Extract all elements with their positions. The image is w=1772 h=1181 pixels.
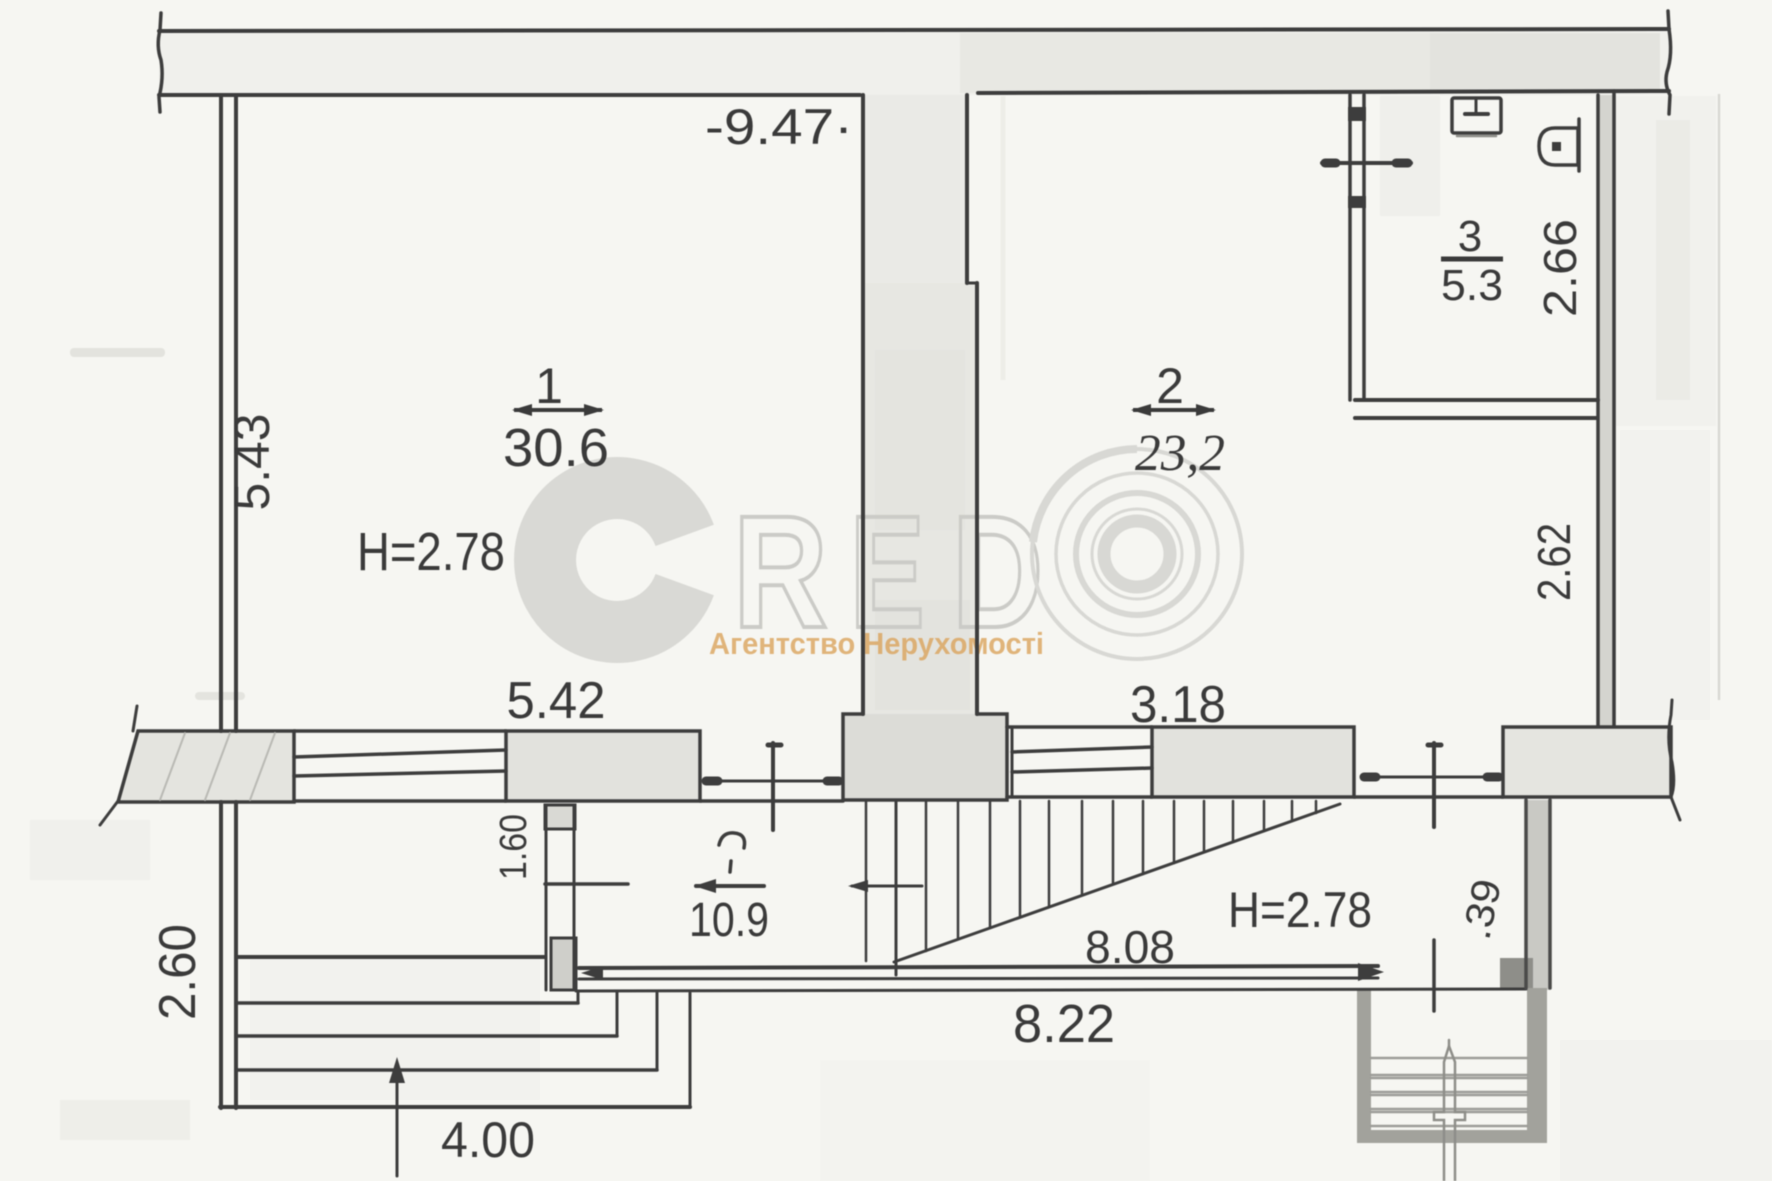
svg-text:-9.47·: -9.47· — [705, 99, 853, 155]
svg-text:8.08: 8.08 — [1085, 921, 1175, 973]
svg-text:5.3: 5.3 — [1441, 261, 1503, 310]
svg-text:1.60: 1.60 — [493, 814, 535, 880]
svg-text:3: 3 — [1458, 212, 1482, 261]
svg-text:Н=2.78: Н=2.78 — [357, 522, 505, 582]
svg-text:1: 1 — [535, 358, 563, 414]
svg-text:Н=2.78: Н=2.78 — [1228, 882, 1372, 938]
svg-text:4.00: 4.00 — [441, 1112, 535, 1168]
svg-text:2.62: 2.62 — [1528, 523, 1580, 601]
svg-text:3.18: 3.18 — [1130, 676, 1226, 734]
svg-text:10.9: 10.9 — [689, 894, 769, 947]
svg-text:23,2: 23,2 — [1135, 425, 1225, 482]
svg-text:8.22: 8.22 — [1013, 994, 1115, 1054]
svg-text:5.43: 5.43 — [224, 414, 280, 511]
svg-text:30.6: 30.6 — [503, 418, 609, 478]
svg-text:2.66: 2.66 — [1534, 219, 1586, 317]
svg-text:5.42: 5.42 — [507, 672, 606, 730]
svg-text:2: 2 — [1156, 358, 1184, 414]
svg-text:2.60: 2.60 — [149, 924, 207, 1020]
svg-text:Агентство Нерухомості: Агентство Нерухомості — [709, 626, 1044, 661]
